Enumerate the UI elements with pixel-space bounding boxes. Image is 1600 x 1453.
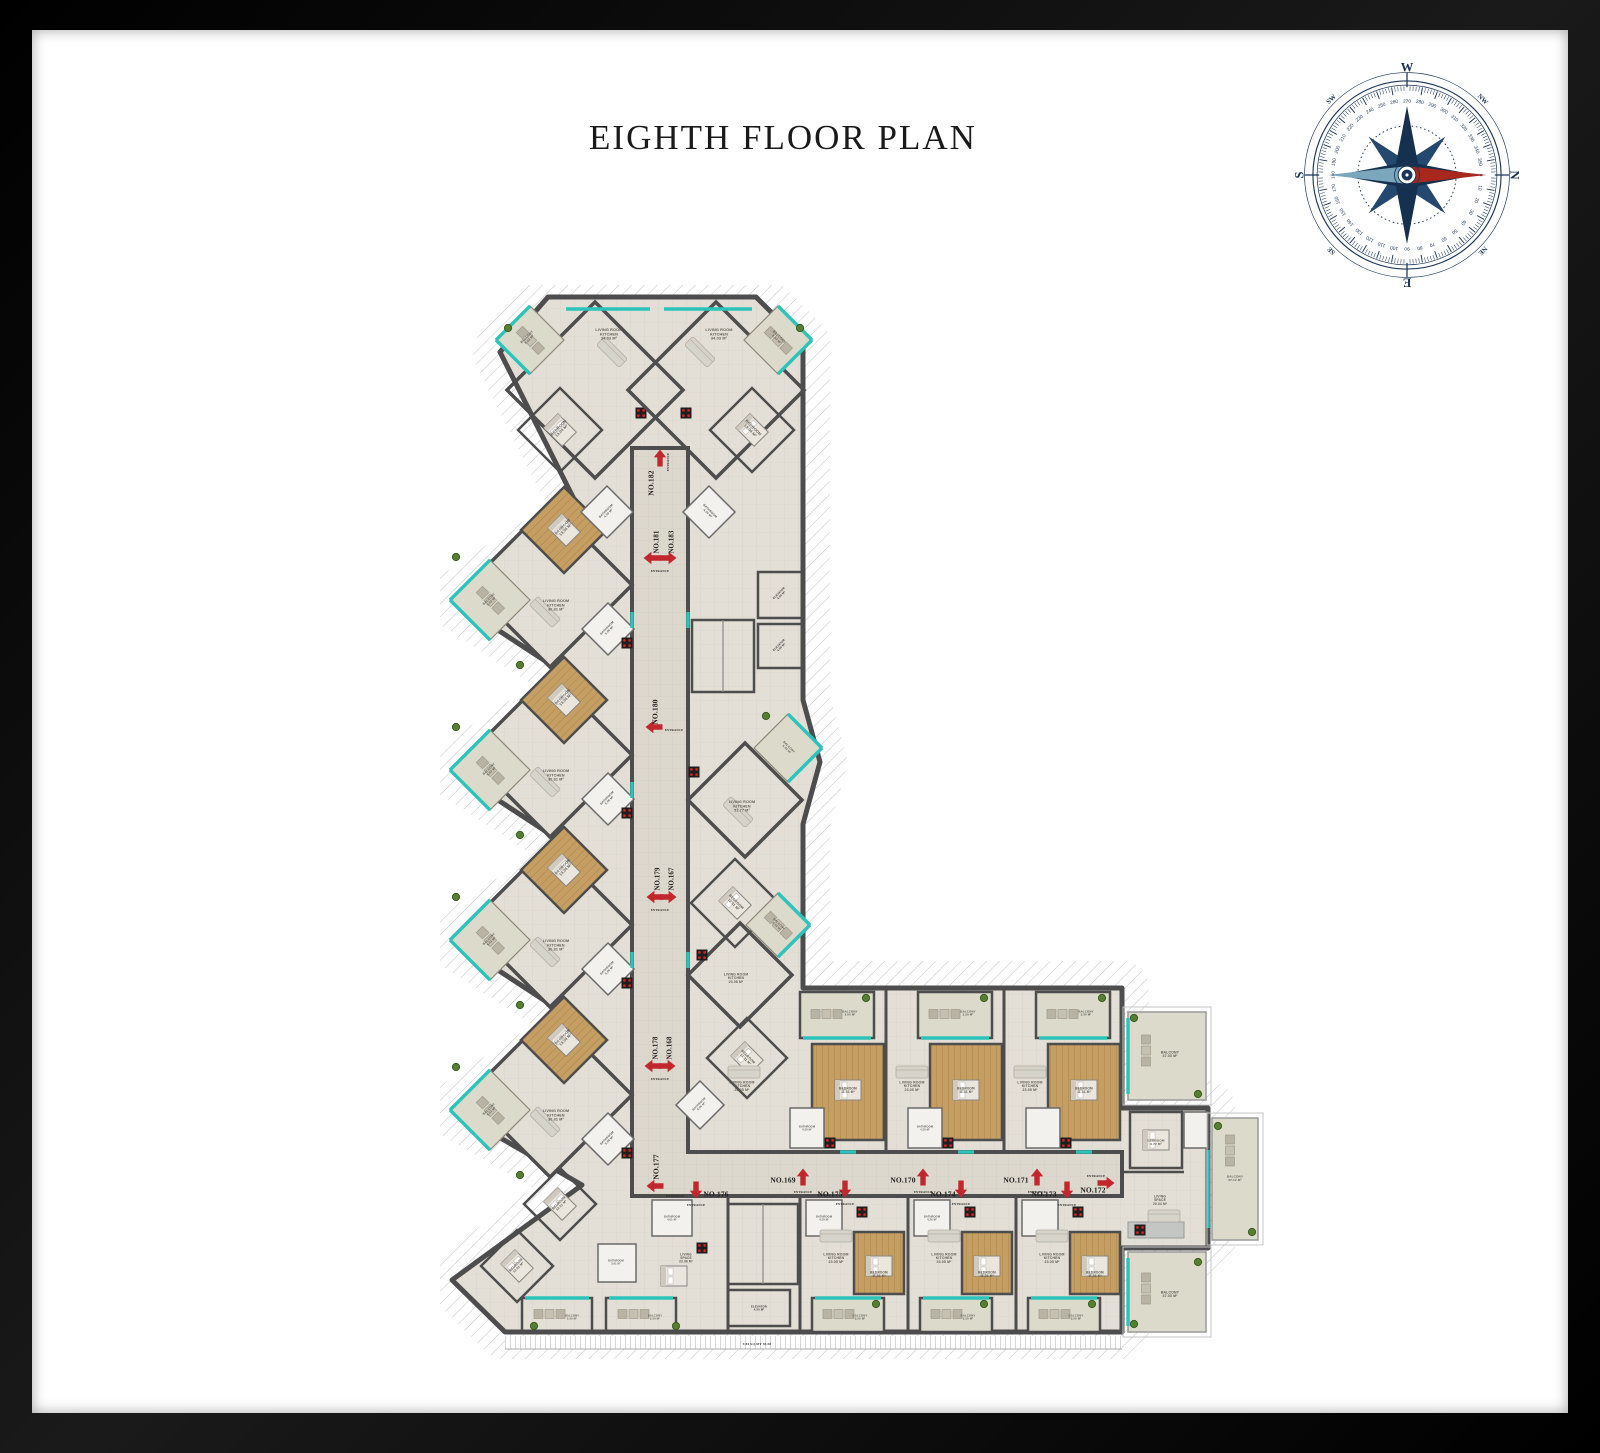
plan-label: NO.176 [703, 1190, 728, 1199]
compass-tick [1326, 139, 1330, 141]
compass-tick [1386, 257, 1387, 262]
plan-label: ENTRANCE [666, 453, 670, 472]
compass-tick [1343, 233, 1346, 236]
compass-tick [1483, 145, 1490, 148]
compass-tick [1452, 100, 1454, 104]
compass-tick [1330, 131, 1337, 135]
compass-tick [1463, 238, 1466, 241]
compass-tick [1459, 241, 1462, 245]
compass-tick [1430, 90, 1431, 95]
compass-tick [1465, 111, 1468, 114]
compass-degree: 90 [1404, 246, 1410, 252]
plan-label: BALCONY3.50 M² [960, 1009, 975, 1016]
compass-tick [1337, 120, 1341, 123]
compass-tick [1333, 125, 1337, 128]
compass-degree: 240 [1365, 106, 1375, 115]
compass-tick [1371, 252, 1373, 256]
compass-tick [1484, 139, 1488, 141]
compass-tick [1321, 195, 1326, 196]
plan-label: BALCONY3.50 M² [648, 1313, 662, 1320]
compass-tick [1454, 101, 1457, 105]
compass-tick [1478, 128, 1482, 130]
compass-tick [1327, 212, 1331, 214]
compass-tick [1389, 88, 1390, 93]
plan-label: BALCONY3.50 M² [853, 1313, 868, 1320]
compass-degree: 70 [1428, 241, 1435, 249]
compass-tick [1419, 87, 1420, 92]
compass-tick [1435, 251, 1438, 258]
compass-tick [1360, 246, 1362, 250]
compass-tick [1424, 88, 1425, 93]
plan-label: ENTRANCE [952, 1202, 971, 1206]
compass-tick [1374, 253, 1376, 257]
compass-tick [1363, 245, 1367, 252]
plan-label: BEDROOM11.31 M² [839, 1086, 857, 1094]
plan-label: NO.174 [930, 1190, 955, 1199]
compass-tick [1452, 246, 1454, 250]
plan-label: LIVINGSPACE25.04 M² [1153, 1194, 1168, 1205]
compass-tick [1335, 123, 1339, 126]
compass-tick [1321, 154, 1326, 155]
compass-tick [1435, 91, 1438, 98]
compass-degree: 200 [1334, 145, 1342, 155]
compass-degree: 330 [1466, 133, 1475, 143]
compass-degree: 260 [1390, 99, 1399, 106]
compass-tick [1441, 252, 1443, 256]
compass-degree: 80 [1416, 244, 1423, 251]
compass-tick [1490, 187, 1495, 188]
compass-tick [1368, 251, 1370, 255]
compass-tick [1433, 90, 1434, 94]
compass-tick [1341, 116, 1344, 119]
compass-tick [1325, 207, 1329, 209]
compass-tick [1380, 255, 1381, 259]
compass-tick [1439, 253, 1441, 257]
plan-label: NO.170 [890, 1176, 915, 1185]
plan-label: NO.181 [653, 530, 660, 553]
compass-degree: 60 [1440, 235, 1448, 243]
compass-degree: 220 [1346, 122, 1356, 132]
plan-label: ENTRANCE [1028, 1190, 1047, 1194]
plan-label: NO.180 [651, 699, 660, 724]
compass-point-E: E [1403, 276, 1411, 290]
compass-tick [1441, 94, 1443, 98]
compass-tick [1477, 131, 1484, 135]
compass-degree: 310 [1449, 114, 1459, 124]
compass-tick [1377, 91, 1380, 98]
plan-label: ENTRANCE [651, 908, 670, 912]
compass-tick [1483, 212, 1487, 214]
compass-tick [1326, 209, 1330, 211]
compass-tick [1439, 93, 1441, 97]
compass-tick [1343, 113, 1346, 116]
compass-tick [1332, 128, 1336, 130]
compass-tick [1333, 222, 1337, 225]
compass-tick [1468, 113, 1471, 116]
plan-label: NO.171 [1003, 1176, 1028, 1185]
compass-tick [1348, 109, 1351, 112]
compass-tick [1487, 148, 1491, 149]
compass-needle-north [1407, 166, 1486, 184]
compass-tick [1374, 93, 1376, 97]
compass-tick [1470, 231, 1473, 234]
compass-needle-south [1328, 166, 1407, 184]
plan-label: ENTRANCE [836, 1202, 855, 1206]
compass-degree: 40 [1459, 218, 1467, 226]
plan-label: BALCONY3.50 M² [565, 1313, 579, 1320]
compass-tick [1357, 245, 1360, 249]
compass-tick [1345, 236, 1348, 239]
plan-label: BEDROOM11.31 M² [978, 1270, 996, 1278]
compass-degree: 130 [1354, 226, 1364, 236]
compass-tick [1421, 87, 1422, 95]
compass-tick [1363, 98, 1367, 105]
compass-tick [1483, 203, 1490, 206]
compass-tick [1330, 216, 1337, 220]
compass-tick [1319, 160, 1327, 161]
compass-degree: 110 [1377, 240, 1387, 248]
compass-tick [1473, 227, 1477, 230]
compass-tick [1475, 224, 1479, 227]
plan-label: NO.183 [668, 530, 675, 553]
compass-tick [1444, 251, 1446, 255]
plan-label: NO.167 [668, 867, 675, 890]
compass-tick [1323, 203, 1330, 206]
compass-tick [1348, 238, 1351, 241]
plan-label: BALCONY37.12 M² [1227, 1174, 1244, 1181]
compass-tick [1487, 160, 1495, 161]
compass-point-N: N [1508, 170, 1522, 179]
plan-label: BALCONY47.03 M² [1161, 1290, 1180, 1298]
compass-degree: 350 [1476, 158, 1483, 167]
compass-tick [1448, 245, 1452, 252]
plan-label: LIVINGSPACE23.08 M² [679, 1253, 693, 1264]
plan-label: ENTRANCE [665, 728, 684, 732]
compass-tick [1419, 258, 1420, 263]
compass-tick [1487, 201, 1491, 202]
compass-degree: 100 [1389, 244, 1398, 251]
compass-tick [1322, 148, 1326, 149]
compass-tick [1380, 90, 1381, 94]
compass-tick [1430, 256, 1431, 261]
compass-degree: 30 [1467, 208, 1475, 216]
compass-tick [1386, 89, 1387, 94]
compass-tick [1473, 120, 1477, 123]
plan-label: BEDROOM11.31 M² [1086, 1270, 1104, 1278]
compass-tick [1332, 220, 1336, 222]
compass-tick [1355, 243, 1358, 247]
compass-tick [1392, 255, 1393, 263]
compass-tick [1489, 154, 1494, 155]
plan-label: BEDROOM11.31 M² [1075, 1086, 1093, 1094]
compass-degree: 170 [1331, 183, 1338, 192]
plan-label: ENTRANCE [1058, 1203, 1077, 1207]
compass-tick [1421, 255, 1422, 263]
compass-tick [1368, 95, 1370, 99]
compass-tick [1447, 249, 1449, 253]
compass-tick [1456, 243, 1459, 247]
compass-tick [1377, 251, 1380, 258]
compass-tick [1357, 101, 1360, 105]
compass-tick [1483, 136, 1487, 138]
compass-point-SE: SE [1326, 245, 1337, 256]
compass-tick [1484, 209, 1488, 211]
compass-degree: 10 [1476, 185, 1483, 192]
compass-tick [1383, 90, 1384, 95]
compass-degree: 140 [1345, 217, 1355, 227]
compass-point-W: W [1401, 60, 1414, 74]
compass-degree: 280 [1415, 99, 1424, 106]
compass-tick [1355, 103, 1358, 107]
plan-label: ENTRANCE [687, 1203, 706, 1207]
compass-tick [1329, 133, 1333, 135]
compass-tick [1489, 192, 1494, 193]
compass-tick [1327, 136, 1331, 138]
compass-tick [1371, 94, 1373, 98]
compass-tick [1481, 215, 1485, 217]
compass-degree: 50 [1450, 227, 1458, 235]
page-title: EIGHTH FLOOR PLAN [553, 118, 1013, 158]
plan-label: BALCONY47.03 M² [1161, 1050, 1180, 1058]
compass-point-NE: NE [1476, 245, 1488, 257]
compass-tick [1424, 257, 1425, 262]
plan-label: NO.179 [654, 867, 661, 890]
plan-label: BALCONY3.50 M² [961, 1313, 976, 1320]
compass-tick [1322, 201, 1326, 202]
plan-label: ENTRANCE [666, 1194, 685, 1198]
compass-tick [1447, 97, 1449, 101]
plan-label: NO.178 [652, 1036, 659, 1059]
compass-tick [1323, 145, 1330, 148]
compass-tick [1352, 241, 1355, 245]
compass-degree: 270 [1403, 98, 1411, 104]
compass-tick [1341, 231, 1344, 234]
compass-tick [1488, 198, 1493, 199]
compass-tick [1325, 142, 1329, 144]
plan-label: BALCONY3.50 M² [1078, 1009, 1093, 1016]
plan-label: BALCONY3.50 M² [842, 1009, 857, 1016]
compass-degree: 290 [1427, 102, 1437, 110]
plan-label: ENTRANCE [794, 1190, 813, 1194]
compass-tick [1365, 97, 1367, 101]
compass-tick [1392, 87, 1393, 95]
plan-label: BEDROOM11.31 M² [957, 1086, 975, 1094]
floor-plan: NO.182NO.181NO.183NO.180NO.179NO.167NO.1… [440, 285, 1270, 1360]
compass-tick [1365, 249, 1367, 253]
plan-label: ENTRANCE [651, 569, 670, 573]
compass-tick [1433, 255, 1434, 259]
compass-degree: 20 [1472, 197, 1480, 204]
compass-degree: 250 [1377, 101, 1387, 109]
compass-tick [1319, 163, 1324, 164]
compass-degree: 160 [1333, 195, 1341, 205]
compass-tick [1468, 233, 1471, 236]
compass-point-S: S [1292, 171, 1306, 178]
screenshot-root: { "page": { "title": "EIGHTH FLOOR PLAN"… [0, 0, 1600, 1453]
compass-tick [1360, 100, 1362, 104]
plan-sheet: EIGHTH FLOOR PLAN 0102030405060708090100… [32, 30, 1568, 1413]
compass-tick [1475, 123, 1479, 126]
compass-tick [1320, 157, 1325, 158]
compass-tick [1448, 98, 1452, 105]
compass-hub-dot [1405, 173, 1408, 176]
compass-degree: 120 [1365, 234, 1375, 243]
compass-tick [1490, 163, 1495, 164]
plan-label: NO.172 [1080, 1186, 1105, 1195]
compass-tick [1444, 95, 1446, 99]
compass-tick [1427, 89, 1428, 94]
compass-tick [1352, 105, 1355, 109]
plan-label: ENTRANCE [1087, 1174, 1106, 1178]
compass-tick [1319, 187, 1324, 188]
plan-label: 9.84 SQ.MT 93.08 [743, 1342, 772, 1346]
compass-tick [1320, 192, 1325, 193]
plan-label: NO.182 [647, 470, 656, 495]
compass-tick [1389, 257, 1390, 262]
compass-tick [1485, 207, 1489, 209]
compass-tick [1459, 105, 1462, 109]
compass-degree: 320 [1459, 123, 1469, 133]
compass-tick [1470, 116, 1473, 119]
plan-label: NO.168 [666, 1036, 673, 1059]
compass-rose: 0102030405060708090100110120130140150160… [1292, 60, 1522, 290]
compass-tick [1463, 109, 1466, 112]
compass-degree: 300 [1439, 107, 1449, 116]
compass-tick [1337, 227, 1341, 230]
plan-label: NO.177 [652, 1154, 661, 1179]
compass-tick [1322, 198, 1327, 199]
plan-label: ENTRANCE [651, 1077, 670, 1081]
plan-label: BALCONY3.50 M² [1069, 1313, 1084, 1320]
compass-tick [1477, 222, 1481, 225]
compass-tick [1319, 189, 1327, 190]
plan-label: NO.175 [817, 1190, 842, 1199]
compass-degree: 150 [1338, 207, 1347, 217]
compass-tick [1489, 157, 1494, 158]
compass-tick [1477, 216, 1484, 220]
compass-tick [1383, 256, 1384, 261]
compass-tick [1335, 224, 1339, 227]
plan-label: BEDROOM11.31 M² [870, 1270, 888, 1278]
plan-label: NO.169 [770, 1176, 795, 1185]
bottom-railing [505, 1336, 1122, 1349]
compass-tick [1477, 125, 1481, 128]
compass-degree: 230 [1355, 113, 1365, 123]
plan-label: ENTRANCE [914, 1190, 933, 1194]
compass-tick [1465, 236, 1468, 239]
compass-tick [1488, 151, 1493, 152]
compass-tick [1395, 258, 1396, 263]
compass-tick [1454, 245, 1457, 249]
compass-degree: 190 [1331, 157, 1338, 166]
compass-tick [1487, 189, 1495, 190]
compass-tick [1345, 111, 1348, 114]
compass-tick [1456, 103, 1459, 107]
compass-tick [1427, 257, 1428, 262]
compass-point-NW: NW [1476, 93, 1489, 106]
compass-degree: 340 [1472, 145, 1480, 155]
compass-tick [1478, 220, 1482, 222]
compass-tick [1489, 195, 1494, 196]
compass-tick [1322, 151, 1327, 152]
compass-degree: 210 [1339, 133, 1348, 143]
compass-tick [1485, 142, 1489, 144]
compass-tick [1329, 215, 1333, 217]
compass-tick [1481, 133, 1485, 135]
compass-tick [1395, 87, 1396, 92]
compass-point-SW: SW [1325, 93, 1338, 106]
